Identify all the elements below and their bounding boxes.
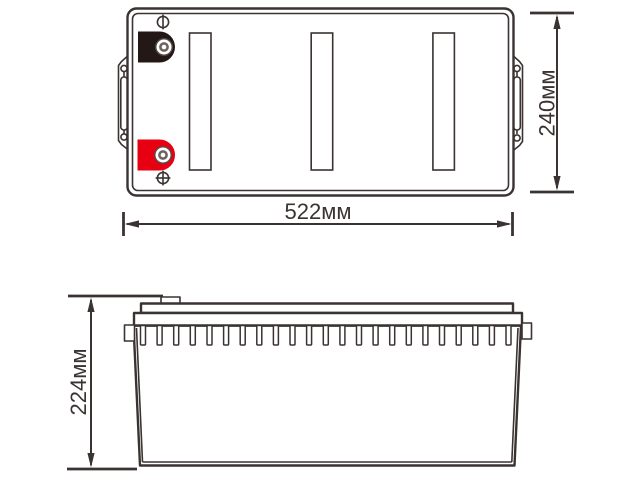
vent-rib bbox=[240, 326, 245, 346]
vent-rib bbox=[373, 326, 378, 346]
vent-rib bbox=[141, 326, 146, 346]
vent-rib bbox=[273, 326, 278, 346]
vent-rib bbox=[473, 326, 478, 346]
battery-body bbox=[134, 326, 522, 466]
negative-terminal bbox=[138, 32, 175, 63]
battery-drawing: 240мм 522мм 224мм bbox=[0, 0, 640, 480]
vent-rib bbox=[406, 326, 411, 346]
vent-rib bbox=[190, 326, 195, 346]
dimension-width: 522мм bbox=[124, 199, 513, 236]
vent-rib bbox=[224, 326, 229, 346]
drawing-page: 240мм 522мм 224мм bbox=[0, 0, 640, 480]
vent-rib bbox=[489, 326, 494, 346]
top-view bbox=[119, 9, 523, 196]
vent-rib bbox=[307, 326, 312, 346]
vent-rib bbox=[290, 326, 295, 346]
vent-rib bbox=[157, 326, 162, 346]
vent-rib bbox=[257, 326, 262, 346]
height-label: 224мм bbox=[66, 349, 91, 416]
vent-rib bbox=[440, 326, 445, 346]
vent-rib bbox=[340, 326, 345, 346]
vent-rib bbox=[357, 326, 362, 346]
vent-rib bbox=[390, 326, 395, 346]
vent-rib bbox=[456, 326, 461, 346]
vent-rib bbox=[207, 326, 212, 346]
dimension-depth: 240мм bbox=[530, 13, 574, 192]
vent-rib bbox=[323, 326, 328, 346]
positive-terminal bbox=[138, 140, 175, 170]
left-tab bbox=[125, 325, 135, 341]
lid-flange bbox=[134, 313, 522, 326]
battery-lid bbox=[141, 304, 513, 314]
vent-rib bbox=[506, 326, 511, 346]
vent-rib bbox=[174, 326, 179, 346]
vent-strip bbox=[433, 33, 455, 170]
width-label: 522мм bbox=[285, 199, 352, 224]
vent-rib bbox=[423, 326, 428, 346]
depth-label: 240мм bbox=[535, 70, 560, 137]
side-view bbox=[125, 297, 532, 466]
right-tab bbox=[522, 323, 532, 339]
vent-strip bbox=[311, 33, 333, 170]
vent-strip bbox=[190, 33, 212, 170]
